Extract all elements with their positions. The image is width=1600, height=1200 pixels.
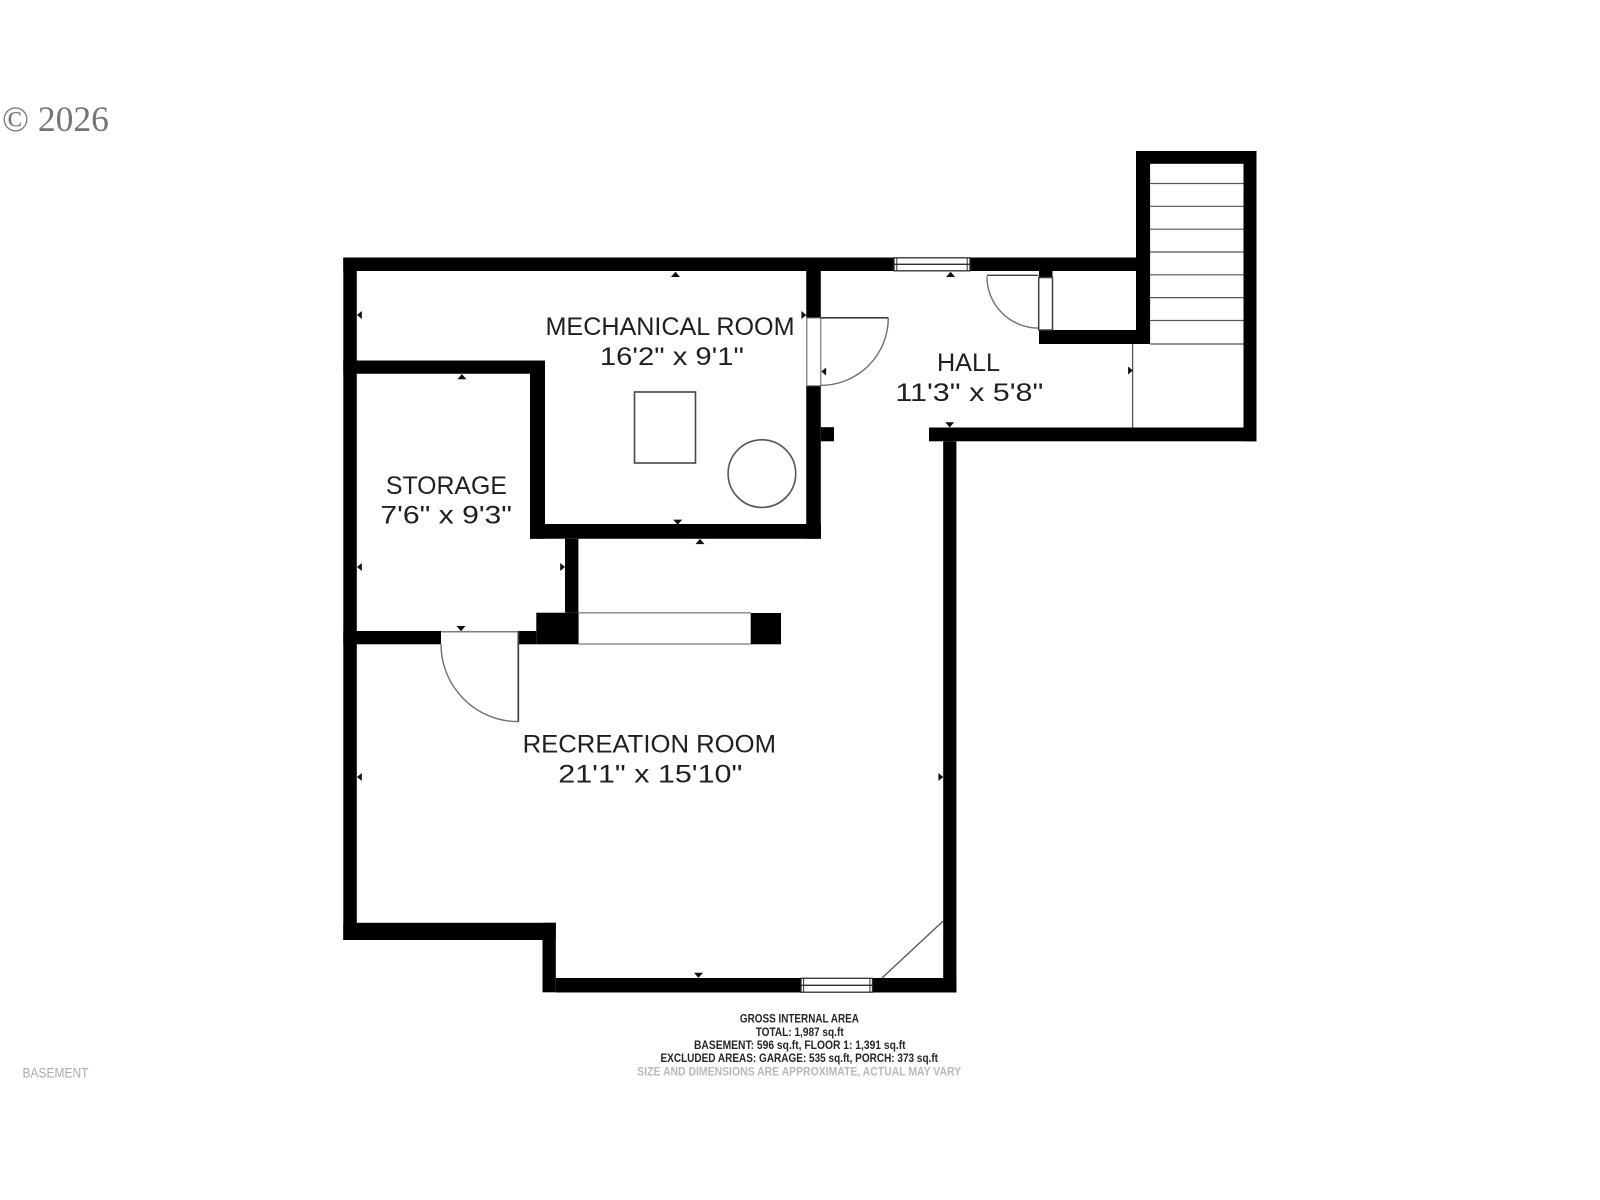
svg-text:STORAGE: STORAGE — [386, 472, 507, 500]
svg-text:21'1" x 15'10": 21'1" x 15'10" — [558, 760, 742, 788]
svg-text:7'6" x 9'3": 7'6" x 9'3" — [380, 502, 512, 530]
svg-text:© 2026: © 2026 — [2, 99, 109, 139]
svg-text:11'3" x 5'8": 11'3" x 5'8" — [895, 379, 1043, 407]
svg-text:RECREATION ROOM: RECREATION ROOM — [523, 731, 776, 759]
svg-text:HALL: HALL — [937, 349, 1000, 377]
svg-text:TOTAL: 1,987 sq.ft: TOTAL: 1,987 sq.ft — [756, 1027, 844, 1039]
svg-text:MECHANICAL ROOM: MECHANICAL ROOM — [546, 313, 795, 341]
svg-text:16'2" x 9'1": 16'2" x 9'1" — [600, 343, 744, 371]
svg-text:BASEMENT: BASEMENT — [23, 1064, 89, 1080]
svg-text:GROSS INTERNAL AREA: GROSS INTERNAL AREA — [740, 1014, 859, 1026]
svg-text:EXCLUDED AREAS: GARAGE: 535 sq: EXCLUDED AREAS: GARAGE: 535 sq.ft, PORCH… — [661, 1053, 939, 1065]
svg-text:BASEMENT: 596 sq.ft, FLOOR 1:: BASEMENT: 596 sq.ft, FLOOR 1: 1,391 sq.f… — [694, 1040, 906, 1052]
svg-text:SIZE AND DIMENSIONS ARE APPROX: SIZE AND DIMENSIONS ARE APPROXIMATE, ACT… — [637, 1066, 961, 1078]
